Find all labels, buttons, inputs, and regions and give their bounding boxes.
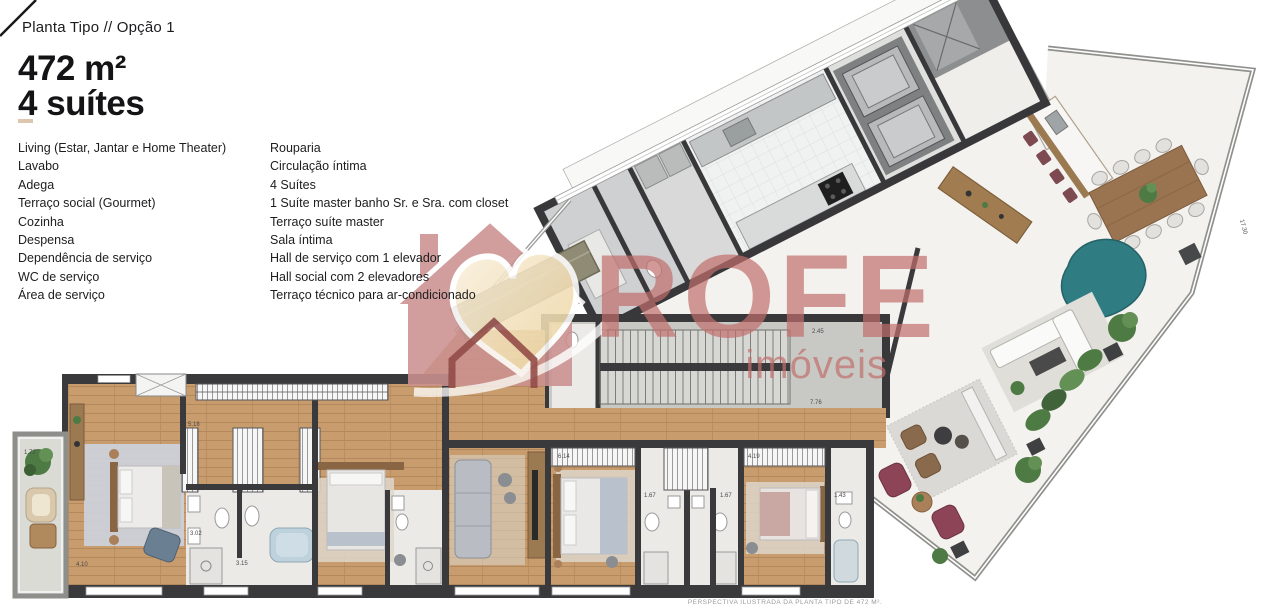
- plan-breadcrumb: Planta Tipo // Opção 1: [22, 19, 175, 36]
- feature-item: Hall social com 2 elevadores: [270, 268, 540, 286]
- accent-bar: [18, 119, 33, 123]
- feature-item: Circulação íntima: [270, 157, 540, 175]
- suite-3: [553, 464, 640, 568]
- feature-item: 1 Suíte master banho Sr. e Sra. com clos…: [270, 194, 540, 212]
- program-left-column: Living (Estar, Jantar e Home Theater) La…: [18, 139, 263, 305]
- sofa: [455, 460, 491, 558]
- terrace-table: [30, 524, 56, 548]
- plan-caption: PERSPECTIVA ILUSTRADA DA PLANTA TIPO DE …: [688, 599, 882, 606]
- tv: [532, 470, 538, 540]
- linen-closet: [664, 448, 708, 490]
- plan-area: 472 m²: [18, 49, 126, 89]
- suite-4: [746, 482, 828, 554]
- feature-item: Terraço suíte master: [270, 213, 540, 231]
- feature-item: 4 Suítes: [270, 176, 540, 194]
- feature-item: Sala íntima: [270, 231, 540, 249]
- svg-text:1.43: 1.43: [834, 493, 846, 499]
- svg-text:3.15: 3.15: [236, 561, 248, 567]
- feature-item: Despensa: [18, 231, 263, 249]
- feature-item: Lavabo: [18, 157, 263, 175]
- sala-intima: [450, 452, 546, 565]
- window: [98, 376, 130, 383]
- headboard: [110, 462, 118, 532]
- program-right-column: Rouparia Circulação íntima 4 Suítes 1 Su…: [270, 139, 540, 305]
- closet-island: [233, 428, 263, 492]
- floor-plan-page: 1.72 4.10 3.02 3.15 5.18 6.14 4.19 1.67 …: [0, 0, 1280, 608]
- feature-item: Hall de serviço com 1 elevador: [270, 249, 540, 267]
- feature-item: Terraço social (Gourmet): [18, 194, 263, 212]
- feature-item: Cozinha: [18, 213, 263, 231]
- svg-text:4.10: 4.10: [76, 562, 88, 568]
- svg-text:3.02: 3.02: [190, 531, 202, 537]
- feature-item: WC de serviço: [18, 268, 263, 286]
- feature-item: Adega: [18, 176, 263, 194]
- watermark-tagline: imóveis: [745, 343, 888, 387]
- feature-item: Área de serviço: [18, 286, 263, 304]
- master-terrace: [15, 434, 66, 596]
- svg-text:7.76: 7.76: [810, 400, 822, 406]
- feature-item: Terraço técnico para ar-condicionado: [270, 286, 540, 304]
- svg-text:6.14: 6.14: [558, 454, 570, 460]
- plan-suites: 4 suítes: [18, 84, 144, 124]
- svg-text:5.18: 5.18: [188, 422, 200, 428]
- feature-item: Living (Estar, Jantar e Home Theater): [18, 139, 263, 157]
- svg-text:1.67: 1.67: [720, 493, 732, 499]
- svg-text:4.19: 4.19: [748, 454, 760, 460]
- feature-item: Dependência de serviço: [18, 249, 263, 267]
- svg-text:17.30: 17.30: [1238, 219, 1248, 236]
- svg-text:1.67: 1.67: [644, 493, 656, 499]
- feature-item: Rouparia: [270, 139, 540, 157]
- svg-text:1.72: 1.72: [24, 450, 36, 456]
